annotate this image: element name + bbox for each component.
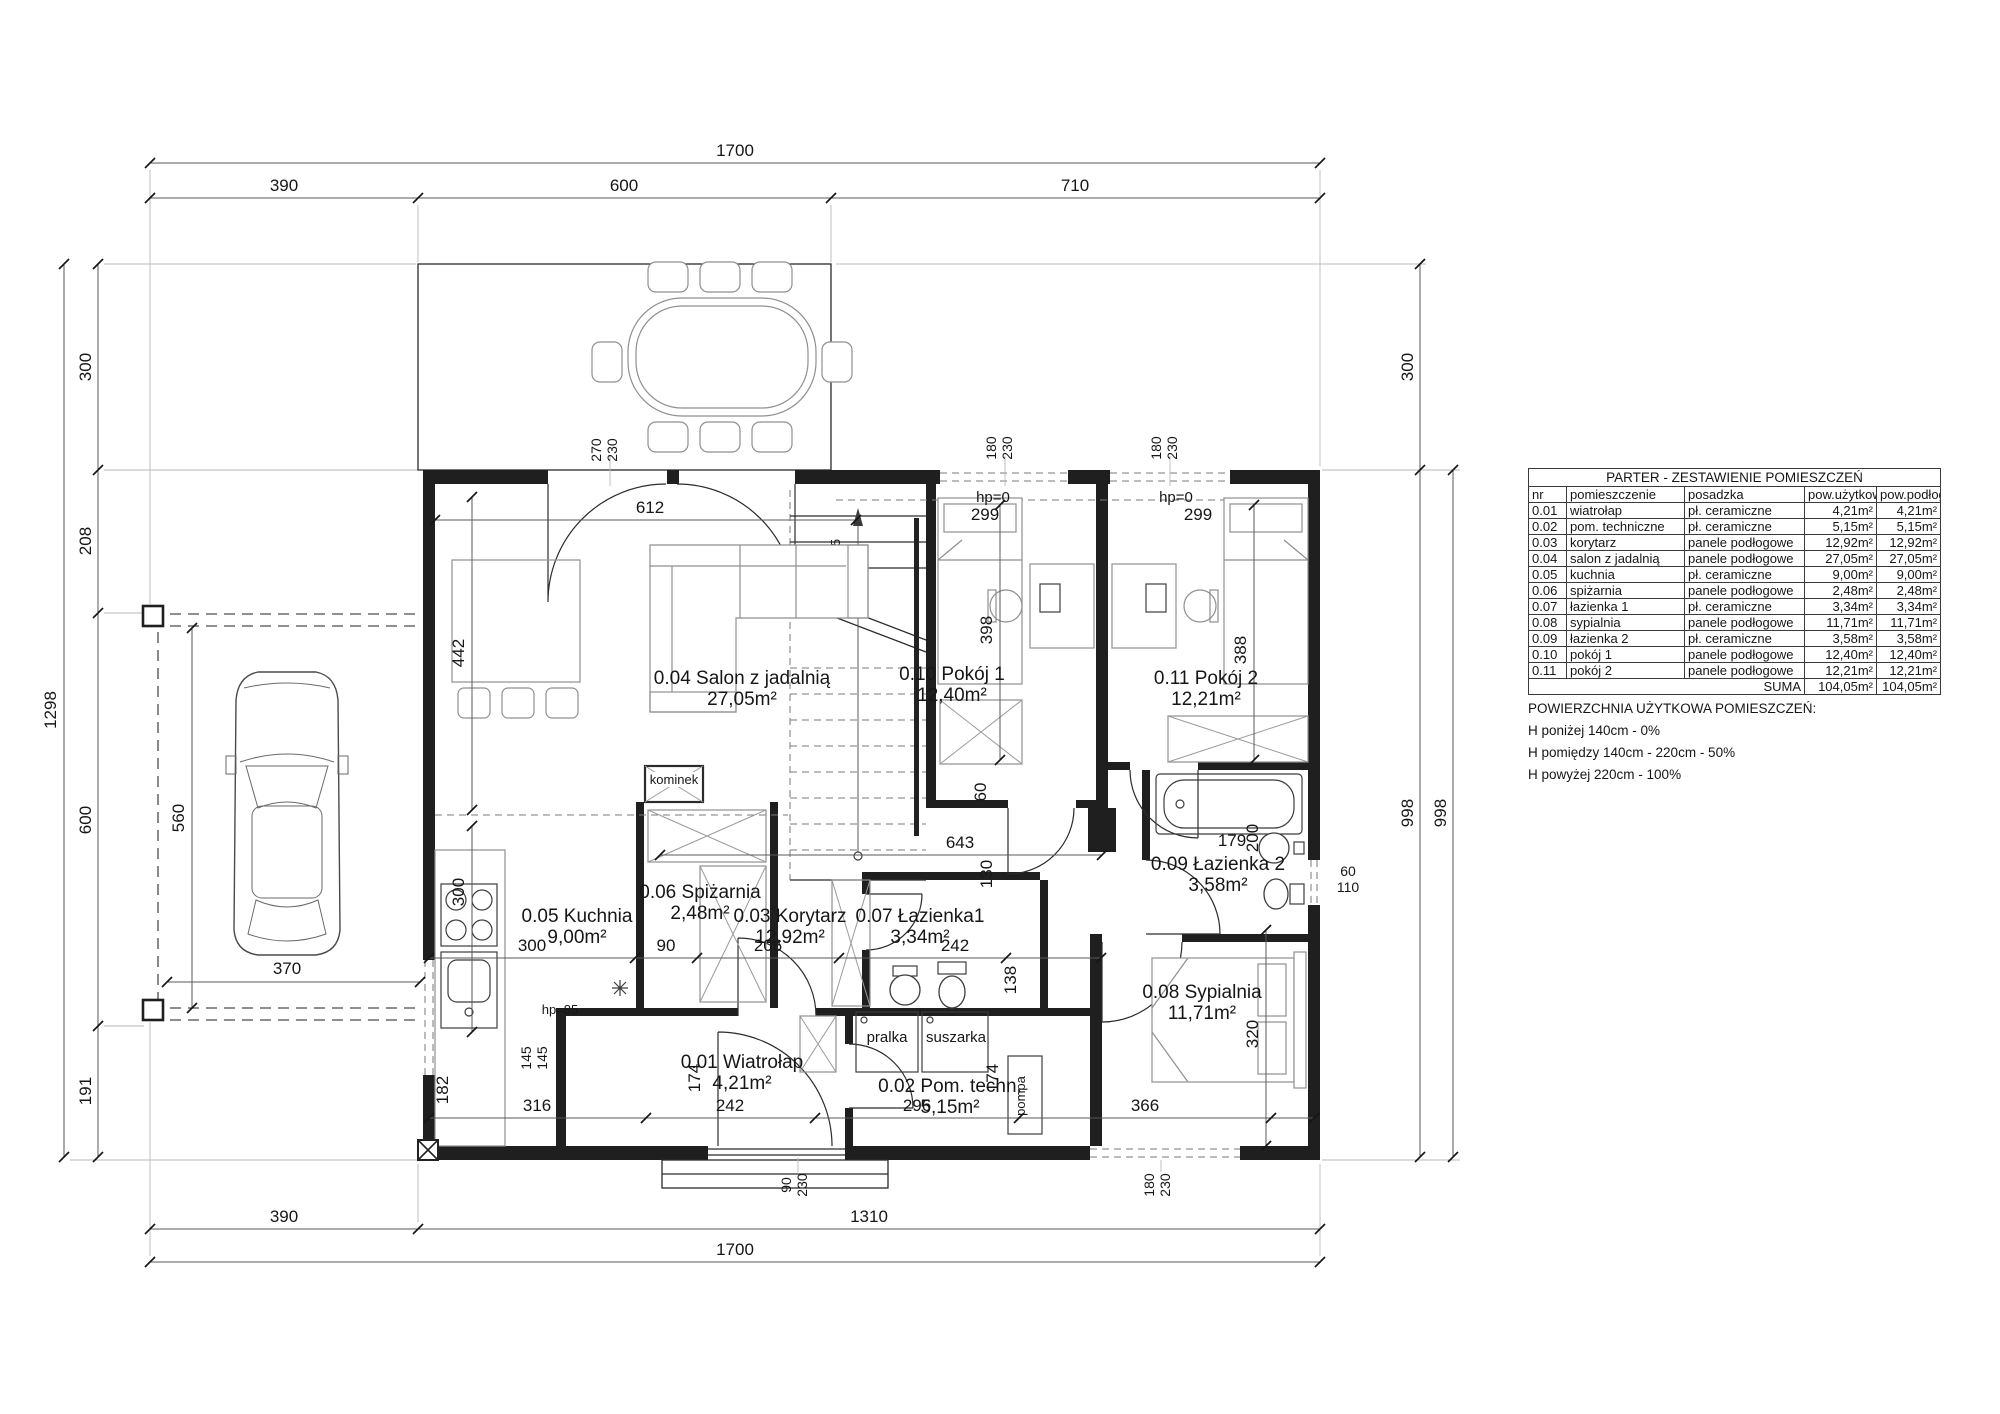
dim: 191 xyxy=(76,1077,95,1105)
room-area: 2,48m² xyxy=(670,903,729,924)
table-row: 0.11pokój 2panele podłogowe12,21m²12,21m… xyxy=(1529,663,1941,679)
room-label: 0.04 Salon z jadalnią xyxy=(654,668,831,689)
dryer-label: suszarka xyxy=(926,1029,987,1046)
suma-area: 104,05m² xyxy=(1877,679,1941,695)
dim: 370 xyxy=(273,959,301,978)
bath2-toilet xyxy=(1264,879,1288,909)
room-area: 5,15m² xyxy=(920,1097,979,1118)
dim: 179 xyxy=(1218,831,1246,850)
dim: 300 xyxy=(76,353,95,381)
dim: 90 xyxy=(657,936,676,955)
cell-area: 2,48m² xyxy=(1877,583,1941,599)
salon-table xyxy=(452,560,580,682)
table-row: 0.08sypialniapanele podłogowe11,71m²11,7… xyxy=(1529,615,1941,631)
cell-room: pokój 1 xyxy=(1567,647,1685,663)
bathtub xyxy=(1156,774,1302,834)
table-row: 0.07łazienka 1pł. ceramiczne3,34m²3,34m² xyxy=(1529,599,1941,615)
cell-nr: 0.07 xyxy=(1529,599,1567,615)
cell-usable: 12,40m² xyxy=(1805,647,1877,663)
cell-nr: 0.08 xyxy=(1529,615,1567,631)
cell-usable: 12,92m² xyxy=(1805,535,1877,551)
cell-room: kuchnia xyxy=(1567,567,1685,583)
cell-nr: 0.02 xyxy=(1529,519,1567,535)
cell-area: 9,00m² xyxy=(1877,567,1941,583)
bed-room1 xyxy=(938,498,1022,684)
table-row: 0.02pom. technicznepł. ceramiczne5,15m²5… xyxy=(1529,519,1941,535)
cell-area: 12,92m² xyxy=(1877,535,1941,551)
room-label: 0.02 Pom. techn. xyxy=(878,1076,1022,1097)
room-schedule-table: PARTER - ZESTAWIENIE POMIESZCZEŃ nr pomi… xyxy=(1528,468,1941,695)
dim: 130 xyxy=(977,860,996,888)
cell-room: łazienka 2 xyxy=(1567,631,1685,647)
dim: 300 xyxy=(449,878,468,906)
cell-area: 5,15m² xyxy=(1877,519,1941,535)
cell-nr: 0.10 xyxy=(1529,647,1567,663)
lamp-symbol xyxy=(612,980,628,996)
room-area: 3,58m² xyxy=(1188,875,1247,896)
cell-floor: panele podłogowe xyxy=(1685,615,1805,631)
table-row: 0.06spiżarniapanele podłogowe2,48m²2,48m… xyxy=(1529,583,1941,599)
cell-usable: 12,21m² xyxy=(1805,663,1877,679)
dim: 200 xyxy=(1243,824,1262,852)
shaft-symbol xyxy=(418,1140,438,1160)
cell-nr: 0.03 xyxy=(1529,535,1567,551)
dim: 390 xyxy=(270,1207,298,1226)
room-area: 12,21m² xyxy=(1171,689,1241,710)
window-size: 230 xyxy=(1157,1173,1173,1197)
dim: 299 xyxy=(971,505,999,524)
cell-usable: 3,34m² xyxy=(1805,599,1877,615)
cell-nr: 0.01 xyxy=(1529,503,1567,519)
window-size: 230 xyxy=(604,438,620,462)
window-size: 90 xyxy=(778,1177,794,1193)
cell-area: 4,21m² xyxy=(1877,503,1941,519)
cell-room: korytarz xyxy=(1567,535,1685,551)
window-size: 180 xyxy=(1141,1173,1157,1197)
cell-floor: panele podłogowe xyxy=(1685,583,1805,599)
dim: 208 xyxy=(76,527,95,555)
cell-floor: pł. ceramiczne xyxy=(1685,567,1805,583)
cell-room: wiatrołap xyxy=(1567,503,1685,519)
table-row: 0.04salon z jadalniąpanele podłogowe27,0… xyxy=(1529,551,1941,567)
window-size: 230 xyxy=(999,436,1015,460)
room-area: 11,71m² xyxy=(1168,1003,1236,1024)
dim: 442 xyxy=(449,639,468,667)
room1-door xyxy=(1008,808,1074,874)
dim: 182 xyxy=(433,1076,452,1104)
cell-floor: pł. ceramiczne xyxy=(1685,631,1805,647)
cell-floor: panele podłogowe xyxy=(1685,551,1805,567)
legend-line: H powyżej 220cm - 100% xyxy=(1528,764,1816,786)
table-row: 0.10pokój 1panele podłogowe12,40m²12,40m… xyxy=(1529,647,1941,663)
dim: 145 xyxy=(518,1046,534,1070)
cell-floor: panele podłogowe xyxy=(1685,535,1805,551)
window-size: 230 xyxy=(1164,436,1180,460)
carport-post xyxy=(143,1000,163,1020)
cell-area: 3,58m² xyxy=(1877,631,1941,647)
table-title-row: PARTER - ZESTAWIENIE POMIESZCZEŃ xyxy=(1529,469,1941,487)
suma-usable: 104,05m² xyxy=(1805,679,1877,695)
fireplace-label: kominek xyxy=(650,772,699,787)
dim: 60 xyxy=(971,783,990,802)
room-label: 0.10 Pokój 1 xyxy=(899,664,1005,685)
cell-area: 11,71m² xyxy=(1877,615,1941,631)
room-label: 0.09 Łazienka 2 xyxy=(1151,854,1285,875)
dim: 316 xyxy=(523,1096,551,1115)
col-header-nr: nr xyxy=(1529,487,1567,503)
cell-floor: panele podłogowe xyxy=(1685,647,1805,663)
col-header-room: pomieszczenie xyxy=(1567,487,1685,503)
table-row: 0.05kuchniapł. ceramiczne9,00m²9,00m² xyxy=(1529,567,1941,583)
room-area: 3,34m² xyxy=(890,927,949,948)
dim: 998 xyxy=(1398,799,1417,827)
window-size: 110 xyxy=(1337,879,1360,895)
room-area: 9,00m² xyxy=(547,927,606,948)
dim: 600 xyxy=(610,176,638,195)
window-hp-label: hp=0 xyxy=(976,489,1010,506)
cell-floor: pł. ceramiczne xyxy=(1685,503,1805,519)
dim: 299 xyxy=(1184,505,1212,524)
room-area: 12,40m² xyxy=(917,685,987,706)
cell-floor: panele podłogowe xyxy=(1685,663,1805,679)
room-label: 0.01 Wiatrołap xyxy=(681,1052,804,1073)
cell-usable: 9,00m² xyxy=(1805,567,1877,583)
col-header-usable: pow.użytkowa xyxy=(1805,487,1877,503)
dim: 560 xyxy=(169,804,188,832)
table-title: PARTER - ZESTAWIENIE POMIESZCZEŃ xyxy=(1529,469,1941,487)
window-size: 230 xyxy=(794,1173,810,1197)
dim: 300 xyxy=(1398,353,1417,381)
room-area: 4,21m² xyxy=(712,1073,771,1094)
cell-usable: 4,21m² xyxy=(1805,503,1877,519)
cell-nr: 0.05 xyxy=(1529,567,1567,583)
usable-area-legend: POWIERZCHNIA UŻYTKOWA POMIESZCZEŃ: H pon… xyxy=(1528,698,1816,786)
col-header-area: pow.podłogi xyxy=(1877,487,1941,503)
bath1-sink xyxy=(890,975,920,1005)
cell-nr: 0.04 xyxy=(1529,551,1567,567)
bath1-toilet xyxy=(939,976,965,1008)
table-row: 0.09łazienka 2pł. ceramiczne3,58m²3,58m² xyxy=(1529,631,1941,647)
cell-usable: 2,48m² xyxy=(1805,583,1877,599)
cell-floor: pł. ceramiczne xyxy=(1685,519,1805,535)
washer-label: pralka xyxy=(867,1029,909,1046)
cell-usable: 3,58m² xyxy=(1805,631,1877,647)
dim: 366 xyxy=(1131,1096,1159,1115)
window-size: 60 xyxy=(1340,863,1356,879)
cell-room: sypialnia xyxy=(1567,615,1685,631)
dim: 1310 xyxy=(850,1207,888,1226)
cell-floor: pł. ceramiczne xyxy=(1685,599,1805,615)
dim: 300 xyxy=(518,936,546,955)
floorplan-page: 17x17,5 28 kominek xyxy=(0,0,2000,1414)
dim: 600 xyxy=(76,806,95,834)
dim: 643 xyxy=(946,833,974,852)
dim-total-bottom: 1700 xyxy=(716,1240,754,1259)
table-row: 0.03korytarzpanele podłogowe12,92m²12,92… xyxy=(1529,535,1941,551)
legend-line: H pomiędzy 140cm - 220cm - 50% xyxy=(1528,742,1816,764)
fireplace: kominek xyxy=(645,766,703,802)
doors xyxy=(548,484,1220,1146)
cell-nr: 0.09 xyxy=(1529,631,1567,647)
table-suma-row: SUMA 104,05m² 104,05m² xyxy=(1529,679,1941,695)
furniture: kominek xyxy=(418,498,1308,1188)
room-label: 0.06 Spiżarnia xyxy=(639,882,761,903)
table-header-row: nr pomieszczenie posadzka pow.użytkowa p… xyxy=(1529,487,1941,503)
terrace xyxy=(418,262,852,470)
room-label: 0.03 Korytarz xyxy=(734,906,847,927)
room-label: 0.05 Kuchnia xyxy=(522,906,633,927)
cell-area: 12,21m² xyxy=(1877,663,1941,679)
room-area: 12,92m² xyxy=(755,927,825,948)
dim: 320 xyxy=(1243,1020,1262,1048)
dim: 138 xyxy=(1001,966,1020,994)
col-header-floor: posadzka xyxy=(1685,487,1805,503)
table-row: 0.01wiatrołappł. ceramiczne4,21m²4,21m² xyxy=(1529,503,1941,519)
car-top-view xyxy=(226,672,348,955)
window-size: 270 xyxy=(588,438,604,462)
carport-post xyxy=(143,606,163,626)
cell-area: 27,05m² xyxy=(1877,551,1941,567)
window-size: 180 xyxy=(983,436,999,460)
cell-nr: 0.06 xyxy=(1529,583,1567,599)
suma-label: SUMA xyxy=(1529,679,1805,695)
cell-room: salon z jadalnią xyxy=(1567,551,1685,567)
cell-nr: 0.11 xyxy=(1529,663,1567,679)
window-size: 180 xyxy=(1148,436,1164,460)
window-hp-label: hp=85 xyxy=(542,1002,579,1017)
room-label: 0.11 Pokój 2 xyxy=(1154,668,1258,689)
dim: 388 xyxy=(1231,636,1250,664)
dim: 145 xyxy=(534,1046,550,1070)
dim: 612 xyxy=(636,498,664,517)
cell-area: 3,34m² xyxy=(1877,599,1941,615)
cell-room: pom. techniczne xyxy=(1567,519,1685,535)
dim: 998 xyxy=(1431,799,1450,827)
dim: 710 xyxy=(1061,176,1089,195)
dim-total-top: 1700 xyxy=(716,141,754,160)
room-area: 27,05m² xyxy=(707,689,777,710)
cell-usable: 11,71m² xyxy=(1805,615,1877,631)
cell-area: 12,40m² xyxy=(1877,647,1941,663)
room-label: 0.08 Sypialnia xyxy=(1142,982,1262,1003)
dim: 242 xyxy=(716,1096,744,1115)
legend-title: POWIERZCHNIA UŻYTKOWA POMIESZCZEŃ: xyxy=(1528,698,1816,720)
room-label: 0.07 Łazienka1 xyxy=(856,906,985,927)
dim: 398 xyxy=(977,616,996,644)
cell-usable: 5,15m² xyxy=(1805,519,1877,535)
cell-room: łazienka 1 xyxy=(1567,599,1685,615)
dim: 390 xyxy=(270,176,298,195)
dim-total-left: 1298 xyxy=(41,691,60,729)
cell-room: pokój 2 xyxy=(1567,663,1685,679)
legend-line: H poniżej 140cm - 0% xyxy=(1528,720,1816,742)
cell-room: spiżarnia xyxy=(1567,583,1685,599)
window-hp-label: hp=0 xyxy=(1159,489,1193,506)
cell-usable: 27,05m² xyxy=(1805,551,1877,567)
